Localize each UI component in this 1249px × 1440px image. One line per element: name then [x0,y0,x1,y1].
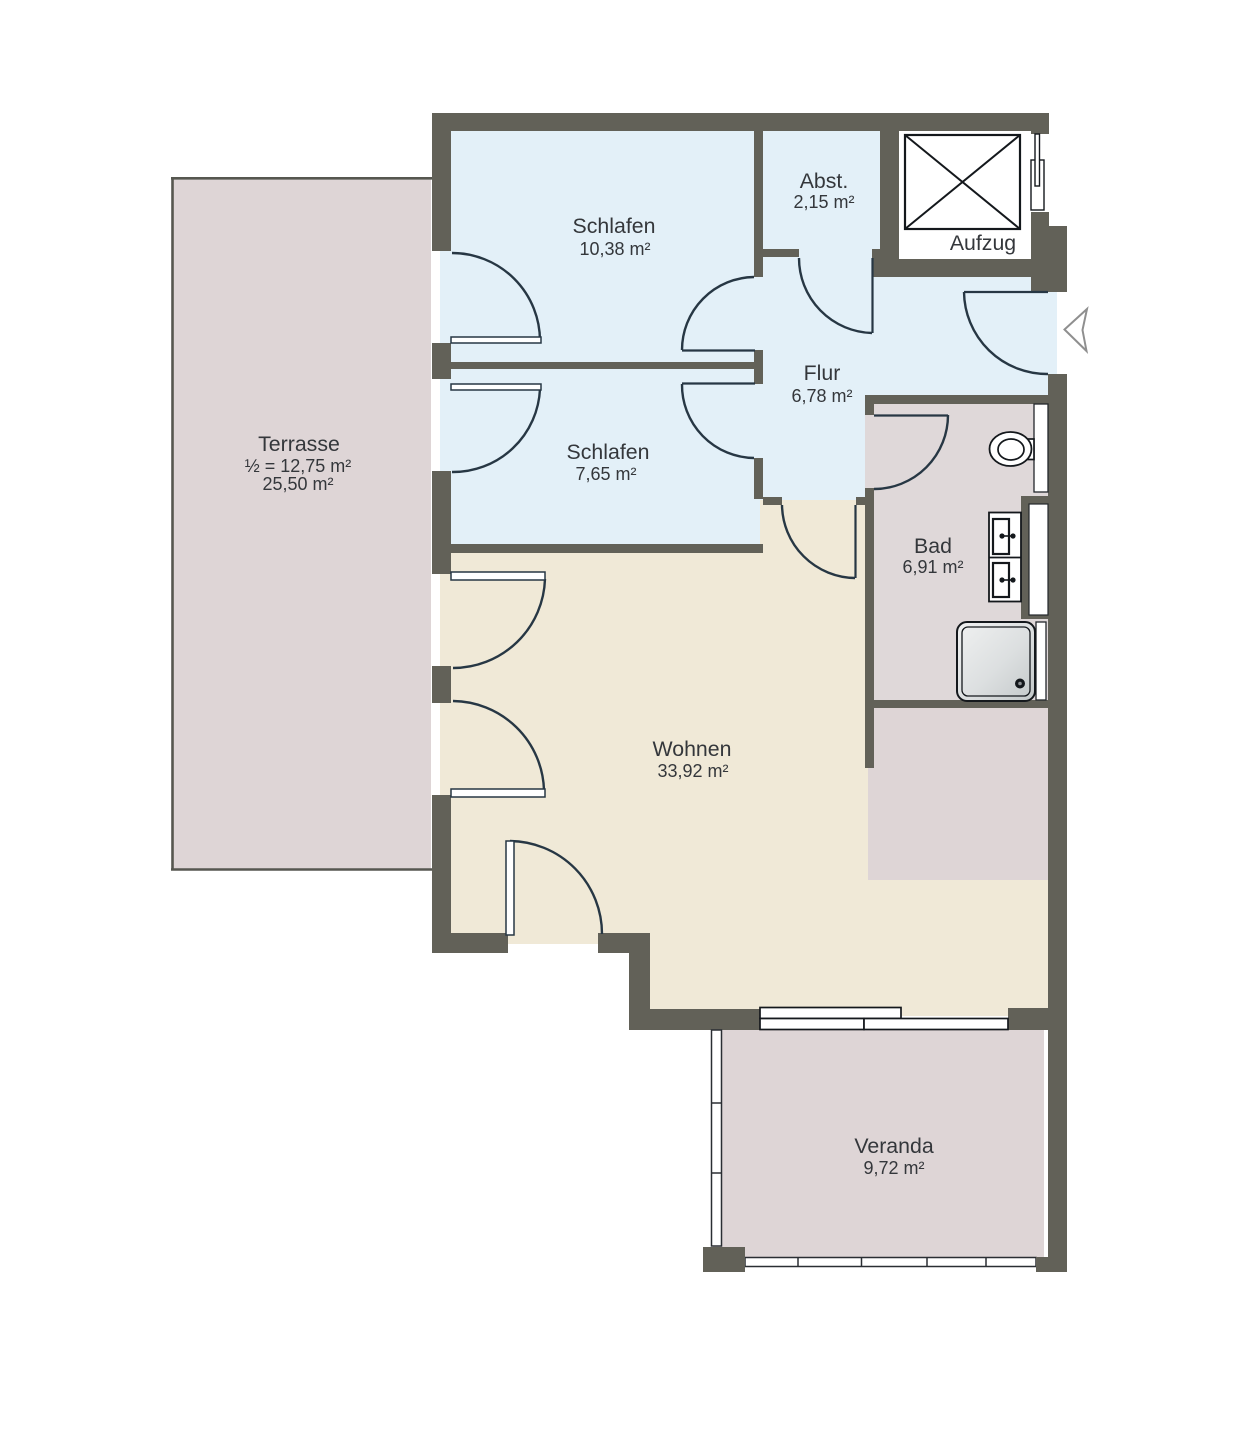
svg-text:Flur: Flur [804,361,841,385]
svg-text:Aufzug: Aufzug [950,231,1016,255]
svg-text:Wohnen: Wohnen [653,737,732,761]
svg-text:Terrasse: Terrasse [258,432,340,456]
svg-text:Abst.: Abst. [800,169,849,193]
svg-text:Schlafen: Schlafen [567,440,650,464]
svg-text:Bad: Bad [914,534,952,558]
svg-text:6,78 m²: 6,78 m² [791,386,852,406]
svg-text:½ = 12,75 m²: ½ = 12,75 m² [245,456,352,476]
svg-text:2,15 m²: 2,15 m² [793,192,854,212]
svg-text:7,65 m²: 7,65 m² [575,464,636,484]
svg-text:Veranda: Veranda [854,1134,933,1158]
svg-text:33,92 m²: 33,92 m² [657,761,728,781]
svg-text:9,72 m²: 9,72 m² [863,1158,924,1178]
svg-text:6,91 m²: 6,91 m² [902,557,963,577]
svg-text:25,50 m²: 25,50 m² [262,474,333,494]
svg-text:Schlafen: Schlafen [573,214,656,238]
svg-text:10,38 m²: 10,38 m² [579,239,650,259]
